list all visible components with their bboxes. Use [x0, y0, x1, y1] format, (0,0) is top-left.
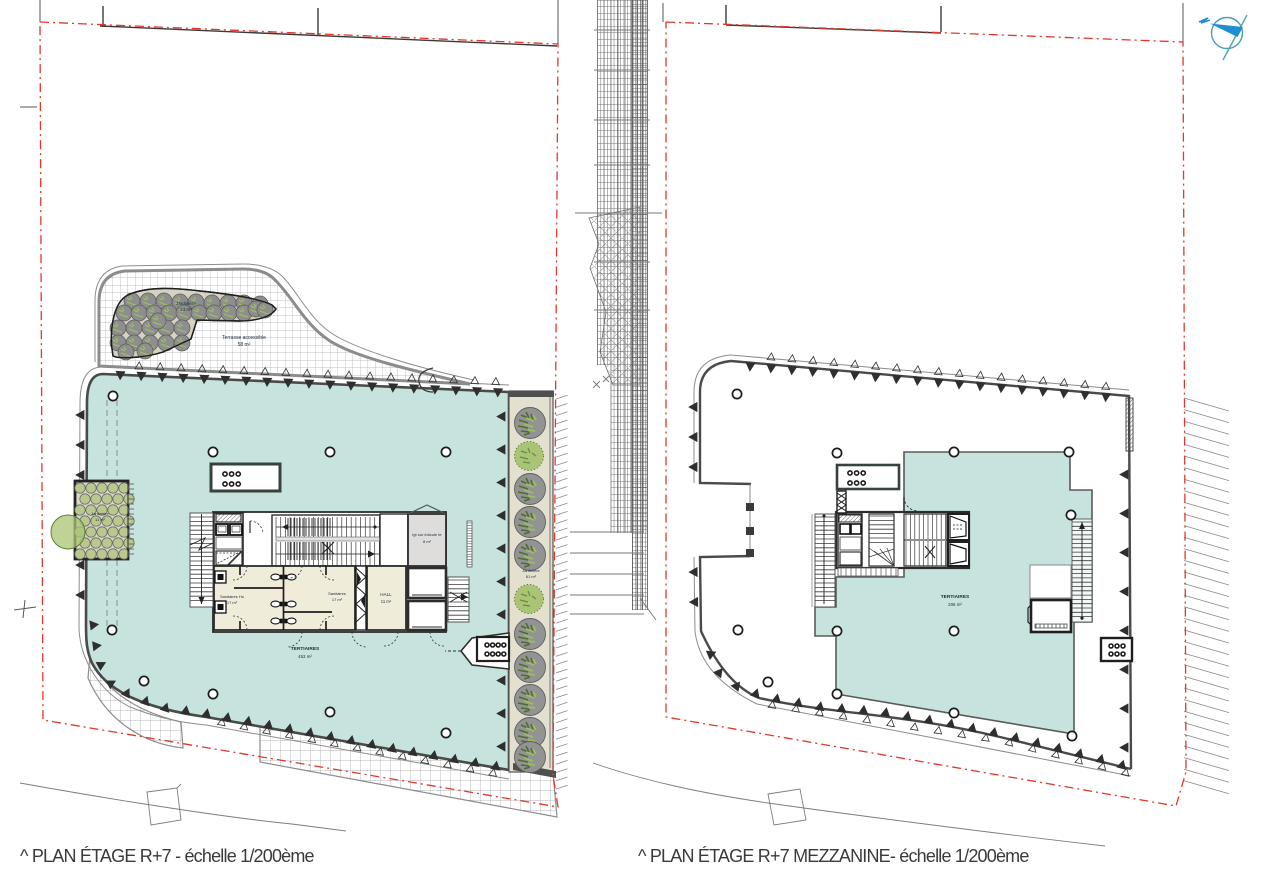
svg-text:453 m²: 453 m² [298, 654, 312, 659]
svg-text:11 m²: 11 m² [95, 517, 106, 522]
svg-text:23 m²: 23 m² [180, 307, 192, 312]
svg-text:^ PLAN ÉTAGE R+7 MEZZANINE- éc: ^ PLAN ÉTAGE R+7 MEZZANINE- échelle 1/20… [638, 846, 1029, 866]
svg-text:8 m²: 8 m² [423, 539, 432, 544]
svg-text:^ PLAN ÉTAGE R+7 - échelle 1/2: ^ PLAN ÉTAGE R+7 - échelle 1/200ème [20, 846, 315, 866]
svg-text:61 m²: 61 m² [526, 574, 537, 579]
svg-text:11 m²: 11 m² [381, 599, 392, 604]
svg-text:lgt sur édicule te: lgt sur édicule te [412, 532, 442, 537]
svg-text:Jardinière: Jardinière [176, 301, 196, 306]
svg-text:Jardinière: Jardinière [522, 568, 540, 573]
svg-text:TERTIAIRES: TERTIAIRES [941, 594, 970, 600]
svg-text:Sanitaires: Sanitaires [328, 591, 346, 596]
svg-text:Terrasse accessible: Terrasse accessible [222, 335, 266, 341]
svg-text:17 m²: 17 m² [332, 597, 343, 602]
svg-text:TERTIAIRES: TERTIAIRES [291, 646, 320, 652]
svg-text:58 m²: 58 m² [238, 342, 251, 348]
svg-text:HALL: HALL [380, 592, 392, 597]
svg-text:Sanitaires Ho: Sanitaires Ho [220, 594, 245, 599]
svg-text:Jardinière: Jardinière [91, 511, 109, 516]
svg-text:206 m²: 206 m² [948, 602, 962, 607]
svg-text:17 m²: 17 m² [227, 600, 238, 605]
